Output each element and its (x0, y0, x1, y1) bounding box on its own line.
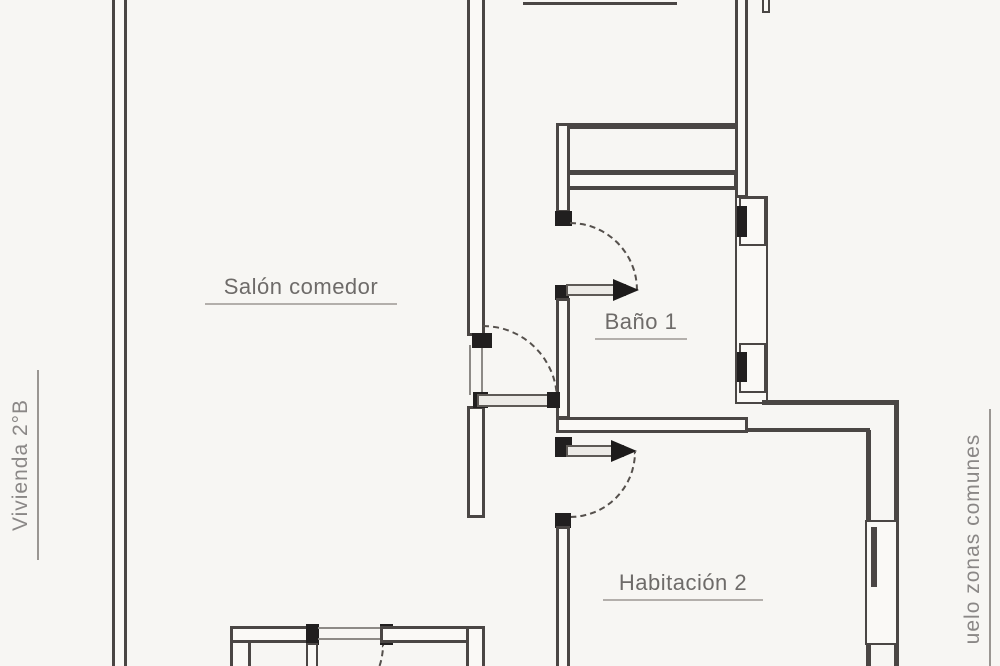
habitacion2-window (865, 520, 898, 645)
wall-corridor-upper (467, 0, 485, 336)
room-label-salon: Salón comedor (205, 274, 397, 305)
wall-bathroom-right-upper (735, 0, 748, 198)
bano1-entry-arrow (613, 279, 639, 301)
room-label-bano1: Baño 1 (595, 309, 687, 340)
wall-stub-top (523, 2, 677, 5)
side-label-zonas-comunes: uelo zonas comunes (961, 409, 991, 666)
wall-band-top (556, 123, 737, 129)
wall-bottomroom-jamb-below (306, 643, 318, 666)
wall-step-inner-h (746, 428, 870, 432)
habitacion2-entry-arrow (611, 440, 637, 462)
wall-right-inner-v-lower (866, 643, 871, 666)
room-label-habitacion2: Habitación 2 (603, 570, 763, 601)
salon-door-leaf-cap (547, 392, 560, 408)
wall-hab2-left-lower (556, 526, 570, 666)
wall-bathroom-bottom (556, 417, 748, 433)
side-label-vivienda: Vivienda 2°B (9, 370, 39, 560)
bottomroom-opening-line-a (318, 627, 382, 629)
wall-band-bottom (565, 170, 737, 190)
floor-plan: Salón comedor Baño 1 Habitación 2 Vivien… (0, 0, 1000, 666)
shaft-box-2-fill (737, 352, 747, 382)
wall-stub-top-right (762, 0, 770, 13)
door-frame-line-salon-a (469, 345, 471, 395)
wall-corridor-lower (467, 406, 485, 518)
wall-bathroom-left-upper (556, 123, 570, 213)
wall-step-outer-h (762, 400, 899, 405)
wall-bottomroom-right (466, 626, 485, 666)
salon-door-arc (483, 325, 558, 400)
habitacion2-window-sash (871, 527, 877, 587)
wall-left-exterior (112, 0, 127, 666)
shaft-box-1-fill (737, 206, 747, 237)
bottom-room-door-arc (318, 645, 384, 666)
wall-right-inner-v-upper (866, 430, 871, 523)
bottomroom-opening-line-b (318, 638, 382, 640)
